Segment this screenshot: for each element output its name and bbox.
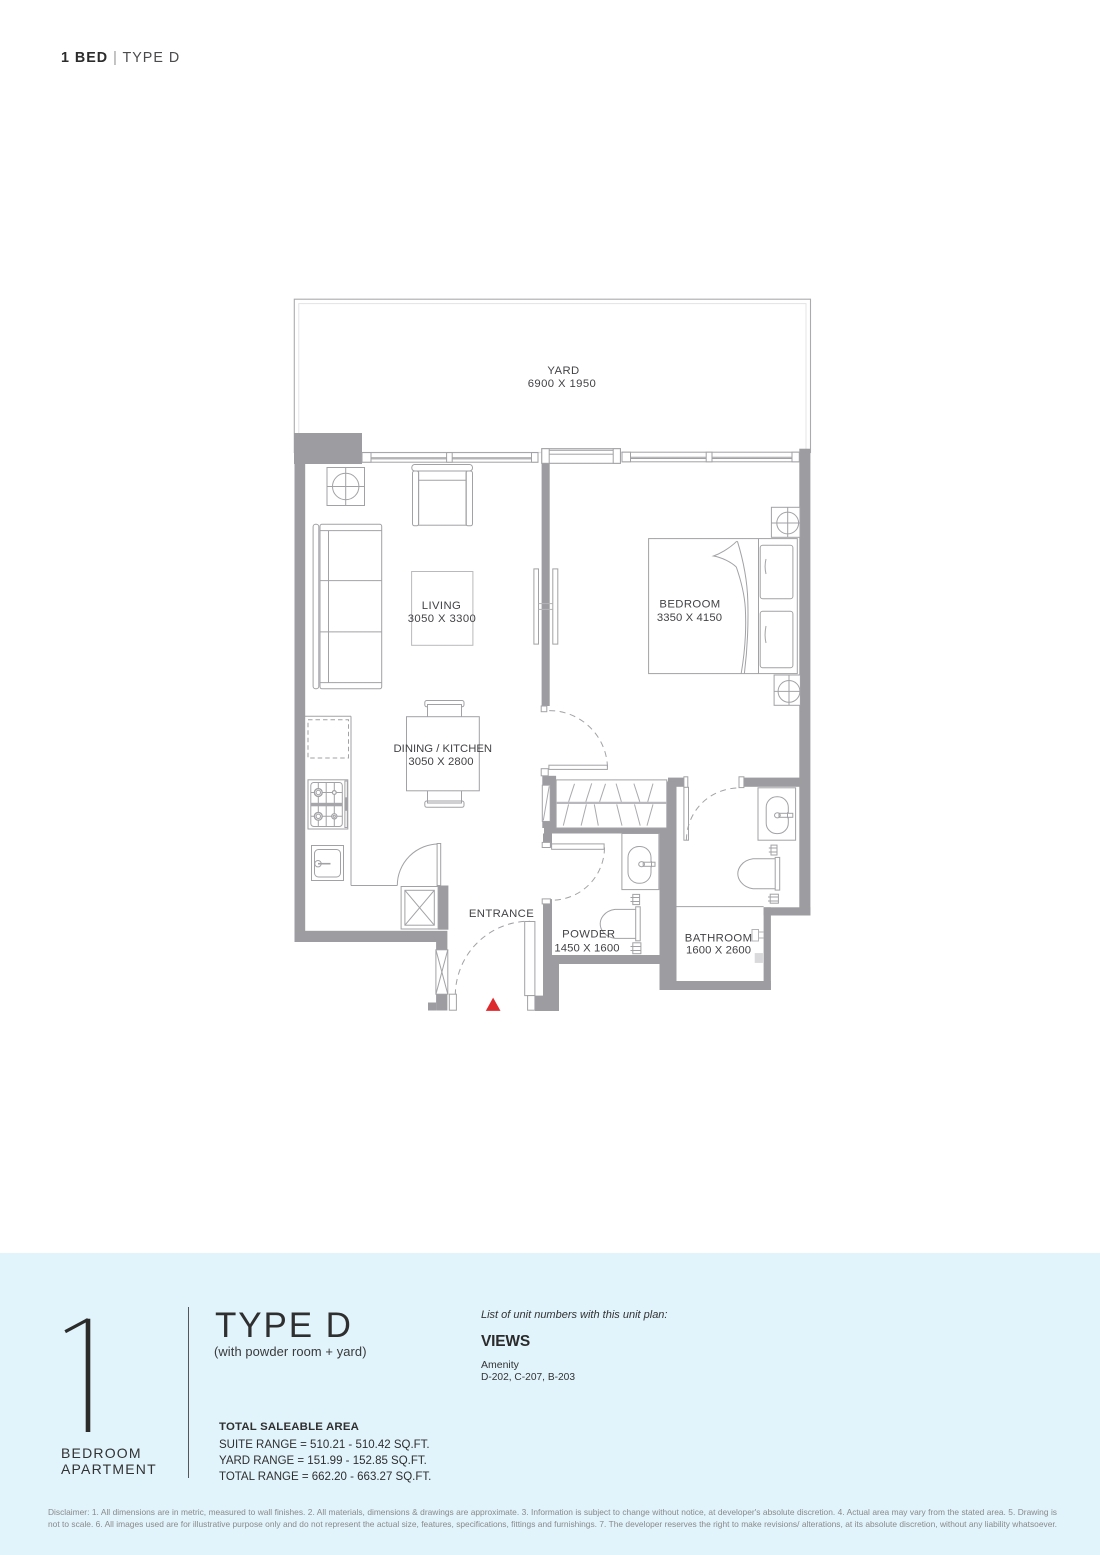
svg-text:LIVING: LIVING: [422, 600, 461, 612]
svg-text:BEDROOM: BEDROOM: [659, 599, 720, 611]
svg-text:1450 X 1600: 1450 X 1600: [554, 943, 619, 955]
svg-text:ENTRANCE: ENTRANCE: [469, 908, 534, 920]
svg-text:POWDER: POWDER: [562, 929, 615, 941]
svg-text:6900 X 1950: 6900 X 1950: [528, 378, 596, 390]
svg-text:1600 X 2600: 1600 X 2600: [686, 945, 751, 957]
svg-text:3050 X 3300: 3050 X 3300: [408, 613, 476, 625]
svg-text:YARD: YARD: [547, 365, 579, 377]
svg-text:3050 X 2800: 3050 X 2800: [408, 756, 473, 768]
svg-text:DINING / KITCHEN: DINING / KITCHEN: [394, 743, 493, 755]
svg-text:BATHROOM: BATHROOM: [685, 932, 753, 944]
svg-text:3350 X 4150: 3350 X 4150: [657, 612, 722, 624]
